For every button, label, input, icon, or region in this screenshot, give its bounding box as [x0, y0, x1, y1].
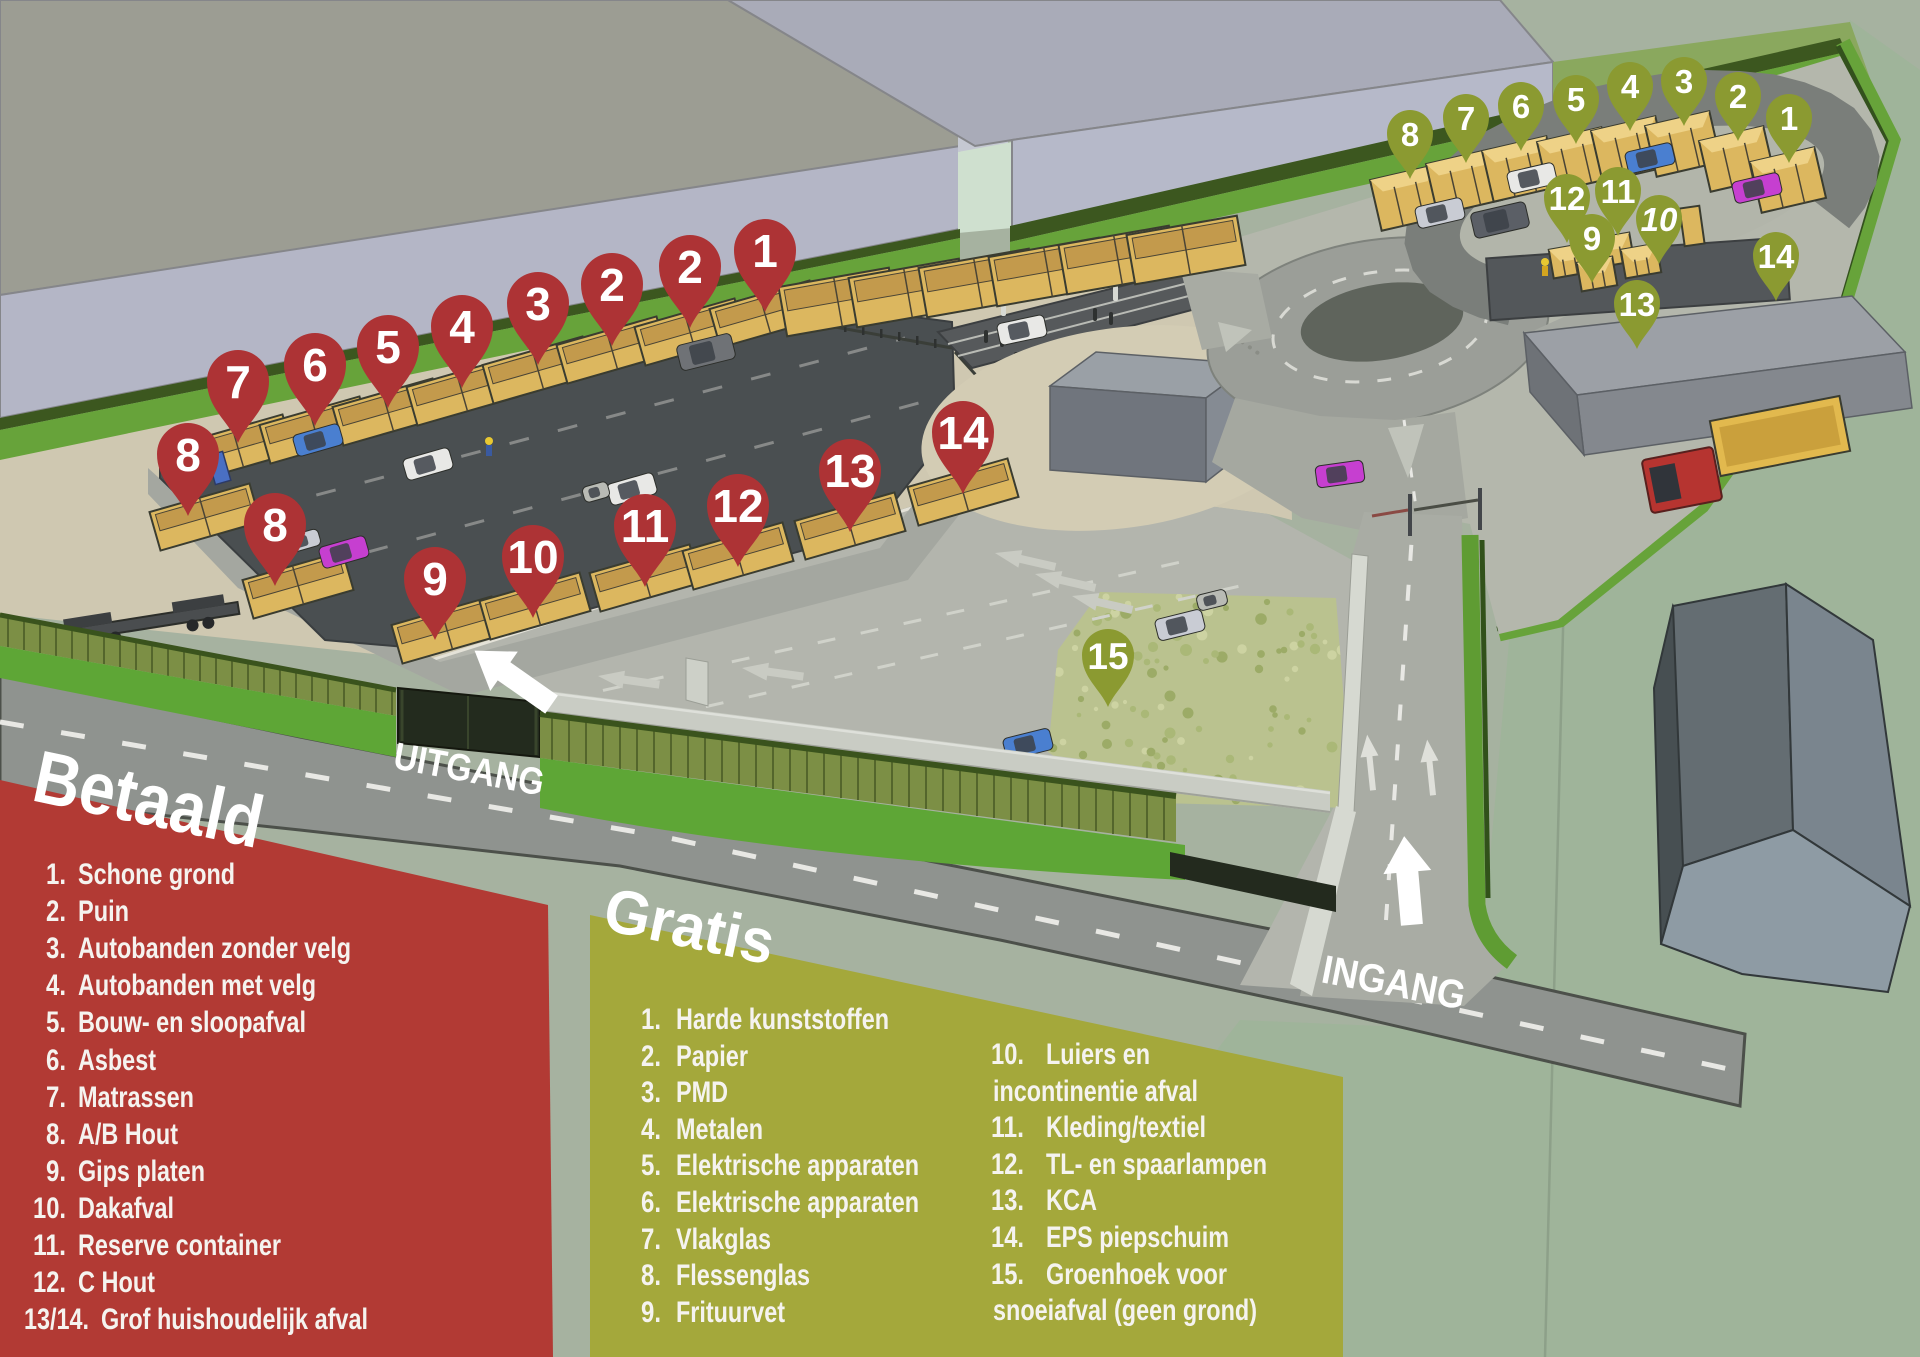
svg-text:2: 2: [1729, 78, 1747, 115]
svg-text:11: 11: [621, 500, 670, 552]
svg-text:14.: 14.: [991, 1221, 1024, 1254]
svg-text:4: 4: [449, 301, 475, 353]
svg-text:9: 9: [1583, 220, 1601, 257]
svg-text:Asbest: Asbest: [78, 1044, 156, 1077]
svg-text:5.: 5.: [46, 1006, 66, 1039]
svg-text:C Hout: C Hout: [78, 1266, 155, 1299]
svg-text:9.: 9.: [46, 1155, 66, 1188]
svg-text:13.: 13.: [991, 1184, 1024, 1217]
svg-text:4: 4: [1621, 68, 1640, 105]
svg-text:15: 15: [1087, 636, 1128, 677]
svg-text:Bouw- en sloopafval: Bouw- en sloopafval: [78, 1006, 306, 1039]
svg-text:Flessenglas: Flessenglas: [676, 1259, 810, 1292]
svg-text:15.: 15.: [991, 1258, 1024, 1291]
svg-text:Puin: Puin: [78, 895, 129, 928]
svg-text:Reserve container: Reserve container: [78, 1229, 281, 1262]
svg-text:incontinentie afval: incontinentie afval: [993, 1075, 1198, 1108]
svg-text:Vlakglas: Vlakglas: [676, 1223, 771, 1256]
svg-text:Luiers en: Luiers en: [1046, 1038, 1150, 1071]
svg-text:9: 9: [422, 553, 448, 605]
svg-text:6.: 6.: [641, 1186, 661, 1219]
svg-text:8.: 8.: [641, 1259, 661, 1292]
svg-text:Dakafval: Dakafval: [78, 1192, 174, 1225]
svg-text:1: 1: [1780, 100, 1798, 137]
svg-text:Kleding/textiel: Kleding/textiel: [1046, 1111, 1206, 1144]
svg-text:6: 6: [302, 339, 328, 391]
svg-text:8.: 8.: [46, 1118, 66, 1151]
svg-text:Schone grond: Schone grond: [78, 858, 235, 891]
svg-text:2: 2: [677, 241, 703, 293]
svg-text:7.: 7.: [641, 1223, 661, 1256]
svg-text:2: 2: [599, 259, 625, 311]
svg-text:11: 11: [1601, 173, 1636, 210]
svg-text:2.: 2.: [641, 1040, 661, 1073]
svg-text:5.: 5.: [641, 1149, 661, 1182]
svg-text:4.: 4.: [46, 969, 66, 1002]
svg-text:2.: 2.: [46, 895, 66, 928]
svg-text:12.: 12.: [991, 1148, 1024, 1181]
svg-text:A/B Hout: A/B Hout: [78, 1118, 178, 1151]
svg-text:Matrassen: Matrassen: [78, 1081, 194, 1114]
svg-text:11.: 11.: [33, 1229, 66, 1262]
svg-text:10: 10: [507, 531, 558, 583]
svg-text:TL- en spaarlampen: TL- en spaarlampen: [1046, 1148, 1267, 1181]
svg-text:3.: 3.: [46, 932, 66, 965]
svg-text:Harde kunststoffen: Harde kunststoffen: [676, 1003, 889, 1036]
svg-text:3.: 3.: [641, 1076, 661, 1109]
svg-text:5: 5: [375, 321, 401, 373]
svg-text:PMD: PMD: [676, 1076, 728, 1109]
svg-text:8: 8: [175, 429, 201, 481]
svg-text:Metalen: Metalen: [676, 1113, 763, 1146]
svg-text:Elektrische apparaten: Elektrische apparaten: [676, 1149, 919, 1182]
svg-text:1: 1: [752, 225, 778, 277]
svg-text:8: 8: [1401, 116, 1419, 153]
svg-text:1.: 1.: [46, 858, 66, 891]
svg-text:6.: 6.: [46, 1044, 66, 1077]
svg-text:5: 5: [1567, 81, 1585, 118]
svg-text:Autobanden met velg: Autobanden met velg: [78, 969, 316, 1002]
svg-text:7: 7: [1457, 100, 1475, 137]
svg-text:13: 13: [824, 445, 875, 497]
svg-text:snoeiafval (geen grond): snoeiafval (geen grond): [993, 1294, 1257, 1327]
svg-text:EPS piepschuim: EPS piepschuim: [1046, 1221, 1229, 1254]
svg-text:3: 3: [525, 278, 551, 330]
svg-text:KCA: KCA: [1046, 1184, 1097, 1217]
svg-text:6: 6: [1512, 88, 1530, 125]
svg-text:9.: 9.: [641, 1296, 661, 1329]
svg-text:12: 12: [712, 480, 763, 532]
svg-text:10.: 10.: [991, 1038, 1024, 1071]
svg-text:8: 8: [262, 499, 288, 551]
svg-text:7.: 7.: [46, 1081, 66, 1114]
svg-text:Autobanden zonder velg: Autobanden zonder velg: [78, 932, 351, 965]
svg-text:3: 3: [1675, 63, 1693, 100]
svg-text:Elektrische apparaten: Elektrische apparaten: [676, 1186, 919, 1219]
svg-text:Grof huishoudelijk afval: Grof huishoudelijk afval: [101, 1303, 368, 1336]
svg-text:13: 13: [1619, 286, 1656, 323]
svg-text:4.: 4.: [641, 1113, 661, 1146]
svg-text:Gips platen: Gips platen: [78, 1155, 205, 1188]
svg-text:1.: 1.: [641, 1003, 661, 1036]
svg-text:Frituurvet: Frituurvet: [676, 1296, 785, 1329]
svg-text:7: 7: [225, 356, 251, 408]
svg-text:14: 14: [937, 407, 989, 459]
svg-text:12: 12: [1549, 180, 1586, 217]
svg-text:12.: 12.: [33, 1266, 66, 1299]
svg-text:11.: 11.: [991, 1111, 1024, 1144]
svg-text:Papier: Papier: [676, 1040, 748, 1073]
svg-text:14: 14: [1758, 238, 1795, 275]
svg-text:10.: 10.: [33, 1192, 66, 1225]
svg-text:Groenhoek voor: Groenhoek voor: [1046, 1258, 1227, 1291]
svg-text:10: 10: [1641, 201, 1678, 238]
svg-text:13/14.: 13/14.: [24, 1303, 89, 1336]
